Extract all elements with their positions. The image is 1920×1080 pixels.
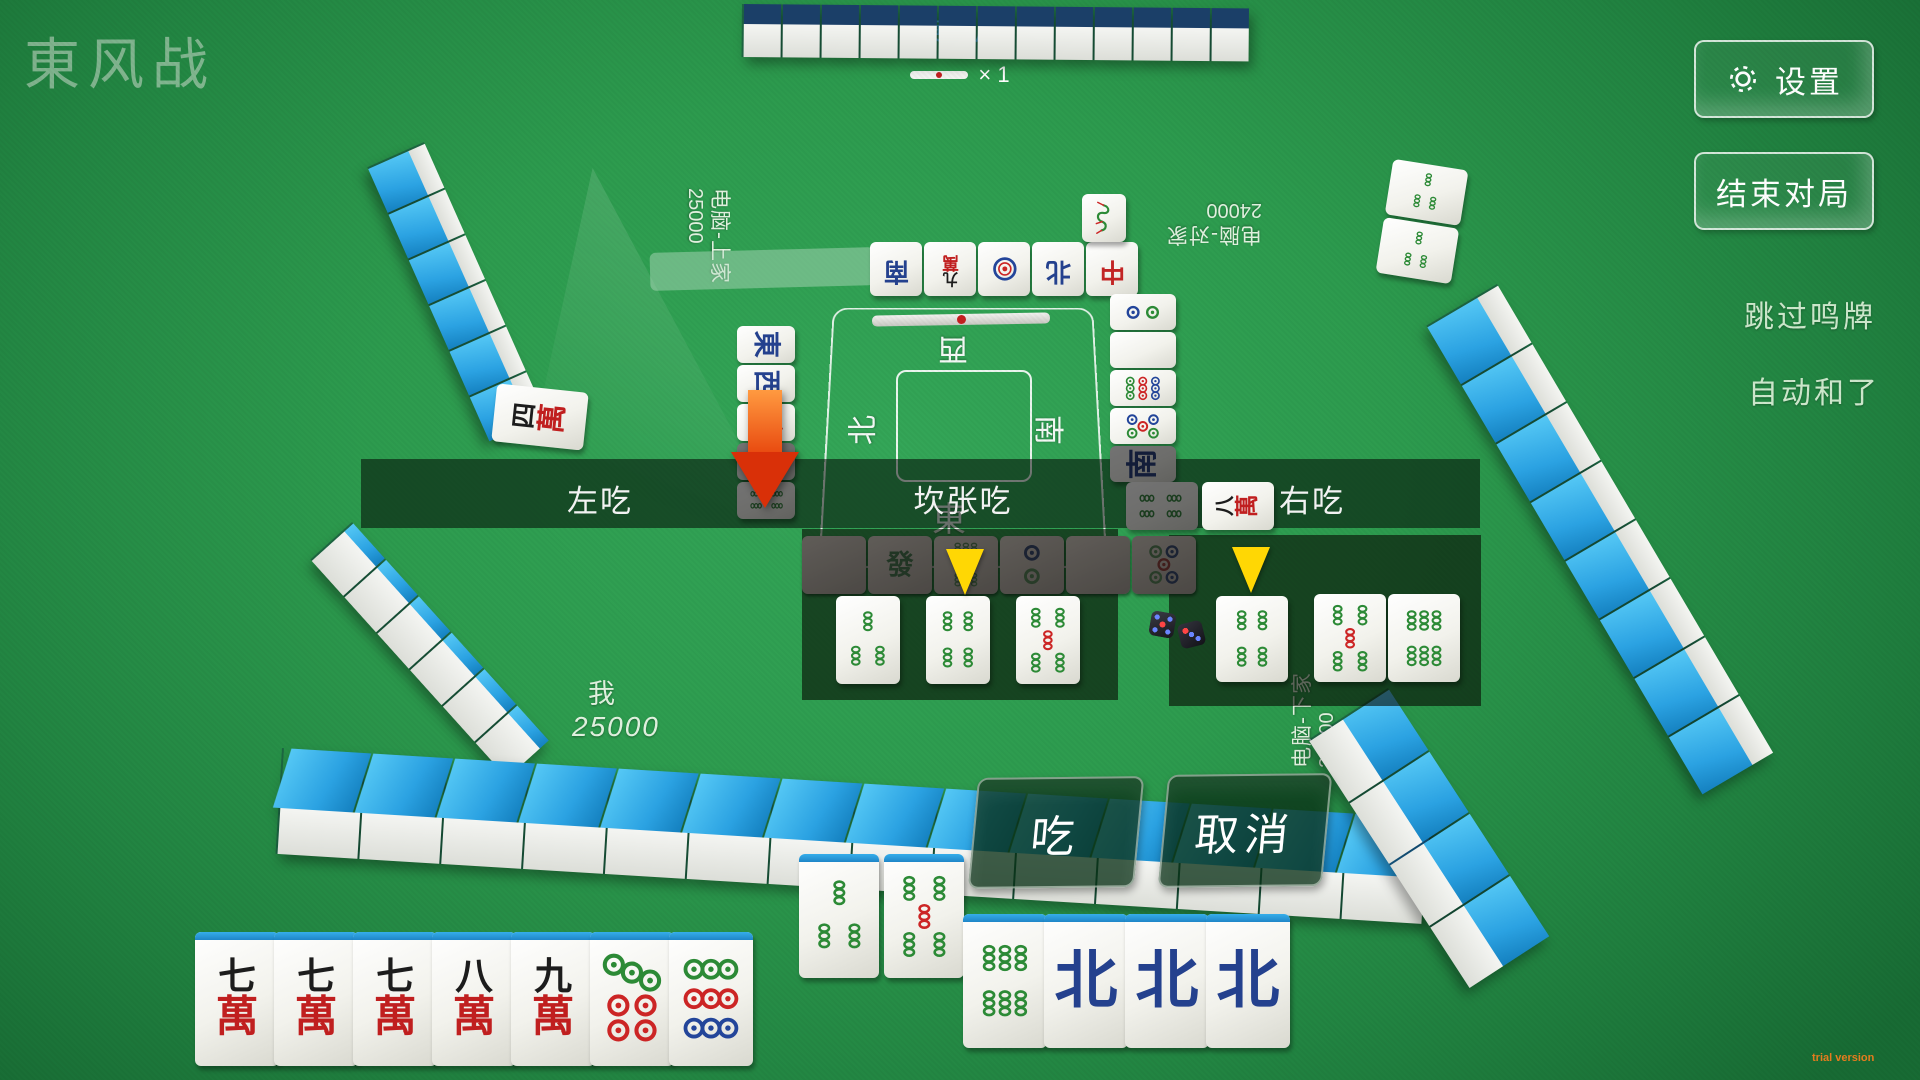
- wall-tile: [820, 5, 859, 58]
- wall-tile: [976, 6, 1015, 59]
- tile-m7[interactable]: 七萬: [353, 932, 437, 1066]
- tile-m8: 八萬: [1202, 482, 1274, 530]
- arrow-head: [731, 452, 799, 508]
- tile-s6[interactable]: [1388, 594, 1460, 682]
- wall-tile: [1054, 7, 1093, 60]
- wall-tile: [937, 6, 976, 59]
- deadwall-tiles: [1375, 159, 1468, 284]
- wall-tile: [1132, 7, 1171, 60]
- tile-s4[interactable]: [926, 596, 990, 684]
- tile-s6[interactable]: [963, 914, 1047, 1048]
- wall-tile: [859, 5, 898, 58]
- dora-indicator-tile: 四萬: [491, 383, 589, 450]
- tile-m9: 九萬: [924, 242, 976, 296]
- tile-m8[interactable]: 八萬: [432, 932, 516, 1066]
- discard-arrow-icon: [731, 390, 799, 510]
- tile-s4: [1126, 482, 1198, 530]
- option-left-chi[interactable]: 左吃: [567, 476, 633, 521]
- player-name: 电脑-上家: [706, 188, 736, 310]
- trial-version-label: trial version: [1812, 1052, 1874, 1064]
- settings-button[interactable]: 设置: [1694, 40, 1874, 118]
- option-kanchan-chi[interactable]: 坎张吃: [914, 476, 1013, 521]
- wall-tile: [1015, 6, 1054, 59]
- auto-win-toggle[interactable]: 自动和了: [1748, 368, 1880, 412]
- tile-s3: [1385, 159, 1469, 226]
- gear-icon: [1725, 61, 1761, 97]
- cancel-button[interactable]: 取消: [1158, 773, 1333, 888]
- tile-s: 南: [870, 242, 922, 296]
- tile-s3[interactable]: [799, 854, 879, 978]
- chi-button[interactable]: 吃: [968, 776, 1145, 889]
- river-top-row1: 南九萬北中: [870, 242, 1138, 296]
- wall-tile: [521, 763, 609, 874]
- tile-s5[interactable]: [1016, 596, 1080, 684]
- hand-tiles-right-group[interactable]: 北北北: [963, 914, 1287, 1048]
- end-game-button[interactable]: 结束对局: [1694, 152, 1874, 230]
- river-top-row2: [1082, 194, 1126, 242]
- player-score: 24000: [1108, 198, 1262, 221]
- tile-n[interactable]: 北: [1044, 914, 1128, 1048]
- tile-s1: [1082, 194, 1126, 242]
- tile-p7[interactable]: [590, 932, 674, 1066]
- wall-tile: [603, 768, 691, 879]
- tile-s5[interactable]: [884, 854, 964, 978]
- tile-p2: [1110, 294, 1176, 330]
- ghost-tile: [650, 247, 875, 291]
- riichi-stick-icon: [910, 71, 968, 79]
- wall-tile: [1171, 8, 1210, 61]
- wall-tile: [276, 748, 364, 859]
- wall-tile: [742, 4, 781, 57]
- wall-tile: [685, 773, 773, 884]
- tile-e: 東: [737, 326, 795, 363]
- tile-m7[interactable]: 七萬: [274, 932, 358, 1066]
- wall-tile: [781, 4, 820, 57]
- tile-s5[interactable]: [1314, 594, 1386, 682]
- tile-m7[interactable]: 七萬: [195, 932, 279, 1066]
- seat-wind-top: 西: [938, 330, 968, 374]
- tile-f: 發: [868, 536, 932, 594]
- wall-tile: [1093, 7, 1132, 60]
- tile-p2: [1000, 536, 1064, 594]
- tile-p1: [978, 242, 1030, 296]
- skip-call-toggle[interactable]: 跳过鸣牌: [1744, 292, 1876, 336]
- river-self: 發: [802, 536, 1196, 594]
- river-right: 南: [1110, 294, 1176, 482]
- hand-tiles[interactable]: 七萬七萬七萬八萬九萬: [195, 932, 748, 1066]
- tile-s3[interactable]: [836, 596, 900, 684]
- option-right-chi[interactable]: 右吃: [1279, 476, 1345, 521]
- arrow-shaft: [748, 390, 782, 454]
- wall-tile: [1210, 8, 1249, 61]
- die-icon: [1148, 610, 1177, 639]
- tile-p5: [1132, 536, 1196, 594]
- player-name: 我: [572, 672, 660, 711]
- call-options-band: 左吃 坎张吃 右吃: [361, 459, 1480, 528]
- tile-s3: [1375, 217, 1459, 284]
- mahjong-table: 東风战 東一局 × 1 西 北 南 東 南九萬北中 東西八萬 南 八萬 左吃 坎…: [0, 0, 1920, 1080]
- tile-s4[interactable]: [1216, 596, 1288, 682]
- chi-option-right-pair[interactable]: [1314, 594, 1460, 682]
- wall-left-lower: [310, 522, 548, 778]
- seat-wind-left: 北: [838, 415, 882, 445]
- tile-s: 南: [1110, 446, 1176, 482]
- player-score: 25000: [683, 188, 706, 310]
- tile-m4: 四萬: [491, 383, 589, 450]
- tile-m9[interactable]: 九萬: [511, 932, 595, 1066]
- seat-wind-right: 南: [1029, 415, 1073, 445]
- tile-p9: [1110, 370, 1176, 406]
- called-tile-marker-icon: [946, 549, 984, 595]
- tile-z: 中: [1086, 242, 1138, 296]
- wall-tile: [357, 753, 445, 864]
- chi-option-right-called-tile[interactable]: [1216, 596, 1288, 682]
- tile-h: [1110, 332, 1176, 368]
- river-right-sideways: 八萬: [1126, 482, 1274, 530]
- repeat-count: × 1: [978, 62, 1009, 88]
- tile-back: [1066, 536, 1130, 594]
- wall-top: [742, 4, 1249, 61]
- player-self-label: 我 25000: [572, 672, 660, 743]
- tile-p5: [1110, 408, 1176, 444]
- hand-raised-chi-tiles[interactable]: [799, 854, 964, 978]
- player-score: 25000: [572, 711, 660, 743]
- chi-option-center-tiles[interactable]: [836, 596, 1080, 684]
- player-left-label: 电脑-上家 25000: [683, 188, 736, 310]
- tile-n: 北: [1032, 242, 1084, 296]
- tile-p9[interactable]: [669, 932, 753, 1066]
- repeat-indicator: × 1: [0, 62, 1920, 88]
- called-tile-marker-icon: [1232, 547, 1270, 593]
- tile-back: [802, 536, 866, 594]
- wall-tile: [439, 758, 527, 869]
- tile-n[interactable]: 北: [1125, 914, 1209, 1048]
- settings-label: 设置: [1775, 57, 1843, 102]
- end-game-label: 结束对局: [1716, 169, 1852, 214]
- tile-n[interactable]: 北: [1206, 914, 1290, 1048]
- wall-tile: [898, 5, 937, 58]
